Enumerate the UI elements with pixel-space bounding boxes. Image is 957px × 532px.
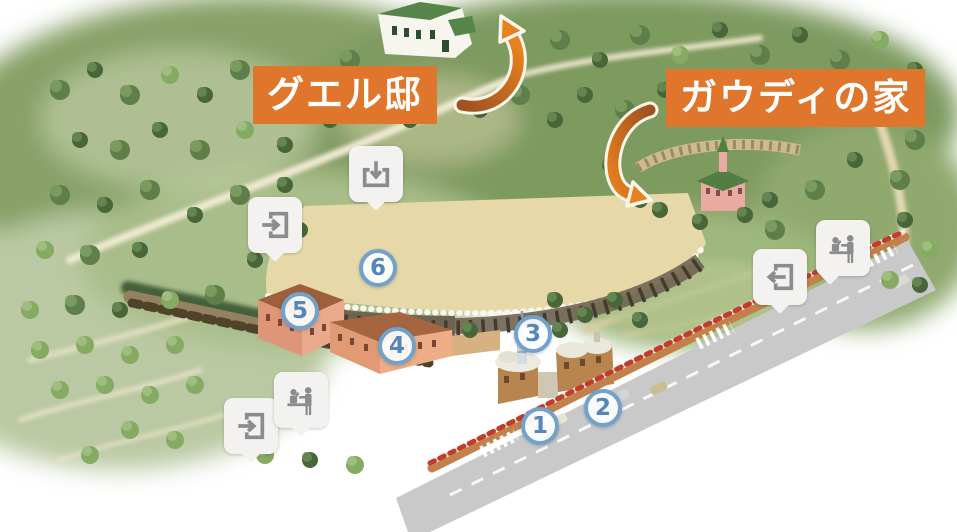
arrow-to-gaudi-house: [592, 100, 692, 215]
entrance-down-icon: [359, 157, 393, 191]
entrance-icon: [258, 208, 292, 242]
main-gate-marker[interactable]: [349, 146, 403, 202]
marker-4[interactable]: 4: [378, 327, 416, 365]
marker-1[interactable]: 1: [521, 407, 559, 445]
entrance-icon: [234, 409, 268, 443]
marker-2[interactable]: 2: [584, 389, 622, 427]
marker-3[interactable]: 3: [514, 315, 552, 353]
marker-6[interactable]: 6: [359, 249, 397, 287]
exit-icon: [763, 260, 797, 294]
label-guell-mansion: グエル邸: [253, 66, 437, 124]
marker-5[interactable]: 5: [281, 292, 319, 330]
entrance-marker-top[interactable]: [248, 197, 302, 253]
ticket-counter-icon: [283, 382, 319, 418]
ticket-counter-icon: [825, 230, 861, 266]
ticket-office-marker-right[interactable]: [816, 220, 870, 276]
ticket-office-marker-bottom[interactable]: [274, 372, 328, 428]
exit-marker-right[interactable]: [753, 249, 807, 305]
arrow-to-guell-mansion: [440, 8, 550, 123]
label-gaudi-house: ガウディの家: [666, 69, 925, 127]
entrance-marker-bottom[interactable]: [224, 398, 278, 454]
park-guell-illustrated-map: グエル邸 ガウディの家 1 2 3 4 5 6: [0, 0, 957, 532]
